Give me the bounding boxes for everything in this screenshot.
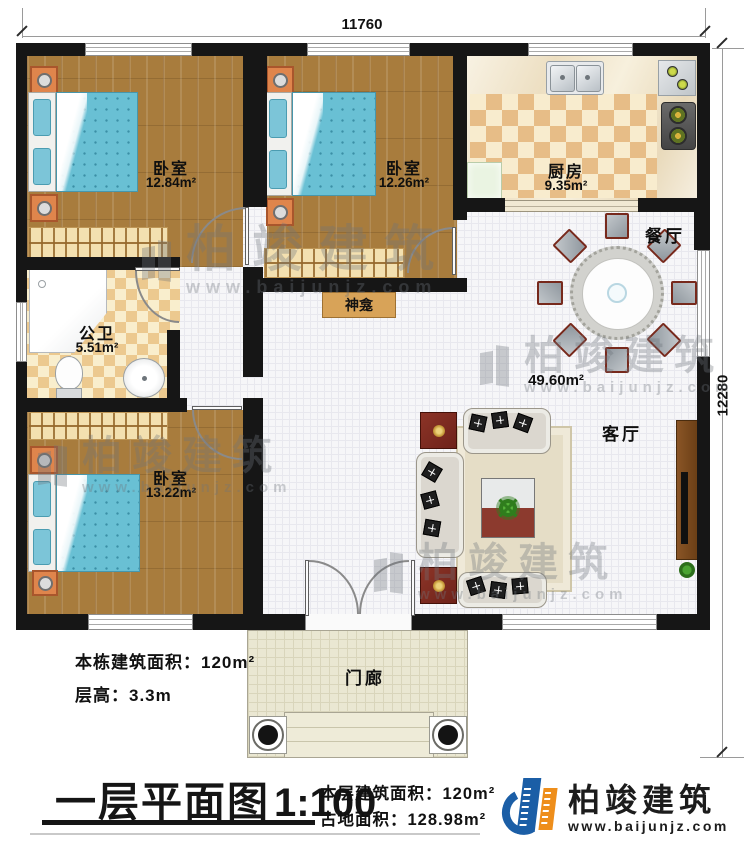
nightstand — [32, 570, 58, 596]
pillow — [33, 481, 51, 518]
land-area-value: 128.98m² — [408, 811, 487, 829]
dining-label: 餐厅 — [623, 222, 707, 247]
bed-headboard — [28, 92, 56, 192]
plant-icon — [679, 562, 695, 578]
floor-height-label: 层高： — [75, 686, 129, 705]
brand-name: 柏竣建筑 — [568, 782, 729, 819]
wall-segment — [453, 43, 467, 220]
dining-chair — [605, 347, 629, 373]
nightstand — [30, 194, 58, 222]
window — [16, 302, 27, 362]
bed-headboard — [28, 474, 56, 572]
tv — [681, 472, 688, 544]
knob-icon — [677, 79, 688, 90]
extension-line — [705, 8, 706, 38]
bed-blanket — [57, 475, 87, 571]
brand-url: www.baijunjz.com — [568, 818, 729, 834]
shower-drain-icon — [38, 280, 46, 288]
lamp-icon — [273, 73, 288, 88]
lamp-icon — [37, 201, 52, 216]
kitchen-area: 9.35m² — [521, 178, 611, 193]
bed-blanket — [293, 93, 323, 195]
door-leaf — [305, 560, 309, 616]
cushion — [489, 581, 507, 599]
door-leaf — [411, 560, 415, 616]
stove — [661, 102, 696, 150]
knob-icon — [667, 66, 678, 77]
door-leaf — [452, 227, 456, 275]
faucet-icon — [560, 75, 565, 80]
entrance-opening — [305, 614, 412, 630]
dimension-tick — [716, 37, 727, 48]
nightstand — [266, 198, 294, 226]
building-area-value: 120m² — [201, 653, 255, 672]
pillow — [269, 99, 287, 138]
side-table — [420, 412, 457, 449]
wall-segment — [167, 330, 180, 400]
title-underline — [42, 820, 315, 825]
shrine-label: 神龛 — [345, 295, 373, 315]
porch-column-core — [258, 725, 278, 745]
pillow — [33, 99, 51, 136]
fridge — [467, 162, 502, 200]
pillow — [33, 529, 51, 566]
dining-chair — [671, 281, 697, 305]
window — [502, 614, 657, 630]
lazy-susan — [607, 283, 627, 303]
coffee-table — [481, 478, 535, 538]
wall-segment — [243, 43, 267, 207]
bed-headboard — [264, 92, 292, 196]
nightstand — [30, 446, 58, 474]
bed — [28, 474, 140, 572]
floor-height-value: 3.3m — [129, 686, 172, 705]
land-area-label: 占地面积： — [320, 811, 408, 829]
wall-segment — [16, 398, 187, 412]
floor-height-note: 层高：3.3m — [75, 681, 172, 706]
bathroom-area: 5.51m² — [52, 340, 142, 355]
wall-segment — [243, 398, 263, 614]
bed — [28, 92, 138, 192]
brand-logo-icon — [503, 776, 559, 840]
nightstand — [266, 66, 294, 94]
burner-icon — [669, 127, 687, 145]
wall-segment — [243, 278, 467, 292]
building-area-label: 本栋建筑面积： — [75, 653, 201, 672]
floor-area-value: 120m² — [443, 785, 496, 803]
wall-segment — [467, 198, 505, 212]
window — [697, 250, 710, 357]
bedroom1-area: 12.84m² — [126, 175, 216, 190]
top-dimension-value: 11760 — [312, 16, 412, 33]
porch-label: 门廊 — [323, 664, 407, 689]
porch-steps — [284, 712, 434, 758]
cushion — [491, 411, 509, 429]
window — [307, 43, 410, 56]
brand-logo: 柏竣建筑 www.baijunjz.com — [503, 776, 729, 840]
cushion — [469, 414, 488, 433]
title-underline-light — [30, 833, 480, 835]
bedroom3-area: 13.22m² — [126, 485, 216, 500]
lamp-icon — [37, 73, 52, 88]
top-dimension-line — [22, 36, 706, 37]
toilet — [55, 356, 83, 390]
faucet-icon — [585, 75, 590, 80]
plant-icon — [496, 496, 520, 520]
side-table — [420, 567, 457, 604]
faucet-icon — [142, 376, 147, 381]
window — [528, 43, 633, 56]
cushion — [423, 519, 442, 538]
extension-line — [22, 8, 23, 38]
wardrobe — [264, 248, 404, 278]
kitchen-opening-threshold — [505, 200, 638, 212]
door-leaf — [135, 267, 180, 271]
bed-blanket — [57, 93, 87, 191]
door-leaf — [245, 207, 249, 265]
floor-area-note: 本层建筑面积：120m² — [320, 780, 495, 804]
lamp-icon — [273, 205, 288, 220]
pillow — [33, 148, 51, 185]
porch-column-core — [438, 725, 458, 745]
living-label: 客厅 — [580, 420, 664, 445]
window — [88, 614, 193, 630]
shrine: 神龛 — [322, 292, 396, 318]
brand-text: 柏竣建筑 www.baijunjz.com — [568, 782, 729, 835]
lamp-icon — [38, 576, 53, 591]
extension-line — [700, 757, 744, 758]
cushion — [511, 577, 528, 594]
window — [85, 43, 192, 56]
living-area: 49.60m² — [511, 372, 601, 389]
burner-icon — [669, 106, 687, 124]
dining-chair — [537, 281, 563, 305]
floor-area-label: 本层建筑面积： — [320, 785, 443, 803]
land-area-note: 占地面积：128.98m² — [320, 806, 486, 830]
kitchen-corner-unit — [658, 60, 696, 96]
plan-title-text: 一层平面图 — [55, 768, 270, 828]
logo-building-orange-icon — [538, 788, 557, 830]
floor-plan-canvas: 11760 12280 — [0, 0, 750, 847]
lamp-icon — [37, 453, 52, 468]
wardrobe — [28, 412, 168, 440]
decor-icon — [433, 580, 445, 592]
building-area-note: 本栋建筑面积：120m² — [75, 648, 255, 673]
kitchen-sink — [546, 61, 604, 95]
nightstand — [30, 66, 58, 94]
wardrobe — [28, 227, 168, 258]
bedroom2-area: 12.26m² — [359, 175, 449, 190]
decor-icon — [433, 425, 445, 437]
pillow — [269, 150, 287, 189]
door-leaf — [192, 406, 242, 410]
